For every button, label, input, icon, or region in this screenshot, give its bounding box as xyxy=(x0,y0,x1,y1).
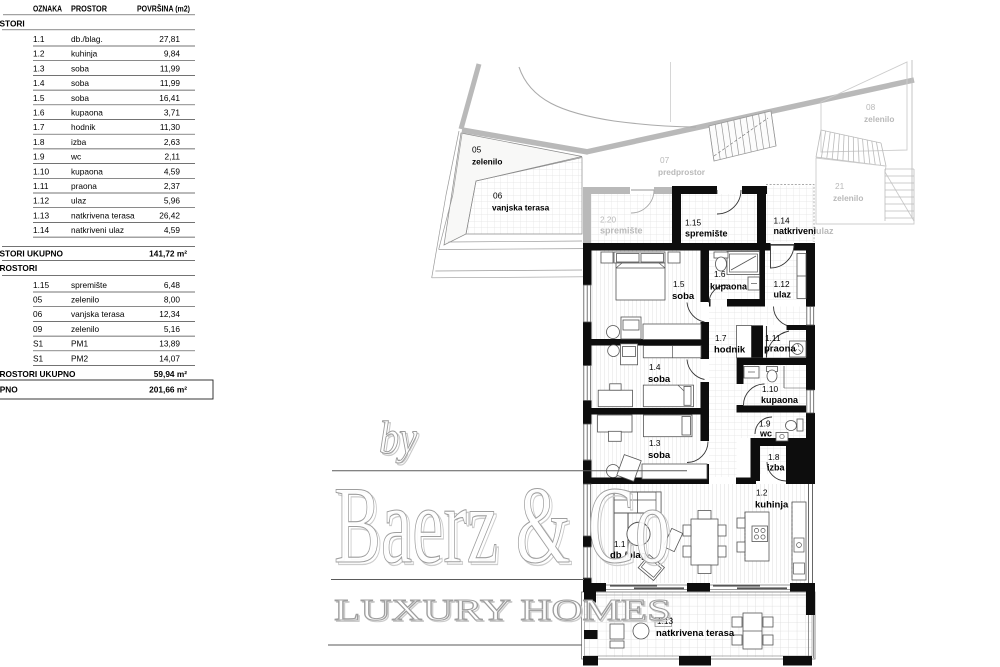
svg-text:26,42: 26,42 xyxy=(159,210,180,220)
svg-text:4,59: 4,59 xyxy=(164,225,181,235)
svg-text:izba: izba xyxy=(71,137,87,147)
svg-text:1.2: 1.2 xyxy=(756,488,768,498)
svg-text:zelenilo: zelenilo xyxy=(833,193,863,203)
svg-text:11,99: 11,99 xyxy=(160,63,181,73)
svg-text:wc: wc xyxy=(759,429,772,439)
svg-text:1.8: 1.8 xyxy=(33,137,45,147)
svg-text:13,89: 13,89 xyxy=(159,339,180,349)
svg-text:1.11: 1.11 xyxy=(765,333,781,343)
svg-text:1.2: 1.2 xyxy=(33,49,45,59)
svg-text:07: 07 xyxy=(660,155,670,165)
svg-text:natkriveni: natkriveni xyxy=(774,226,817,236)
svg-text:2.20: 2.20 xyxy=(600,215,617,225)
svg-text:ulaz: ulaz xyxy=(816,226,834,236)
svg-text:16,41: 16,41 xyxy=(159,93,180,103)
svg-text:praona: praona xyxy=(764,344,796,355)
svg-text:1.14: 1.14 xyxy=(774,216,791,226)
svg-text:1.4: 1.4 xyxy=(649,362,661,372)
svg-text:05: 05 xyxy=(33,295,43,305)
svg-text:LUXURY HOMES: LUXURY HOMES xyxy=(334,592,671,627)
svg-text:hodnik: hodnik xyxy=(71,122,96,132)
svg-text:1.15: 1.15 xyxy=(33,280,50,290)
svg-text:UPNO: UPNO xyxy=(0,385,18,395)
svg-text:wc: wc xyxy=(70,152,81,162)
svg-text:PM2: PM2 xyxy=(71,353,88,363)
svg-text:1.9: 1.9 xyxy=(759,419,771,429)
svg-text:PROSTORI: PROSTORI xyxy=(0,263,37,273)
svg-text:zelenilo: zelenilo xyxy=(71,295,100,305)
svg-text:spremište: spremište xyxy=(71,280,107,290)
svg-text:POVRŠINA (m2): POVRŠINA (m2) xyxy=(137,3,190,14)
svg-text:1.5: 1.5 xyxy=(673,279,685,289)
svg-text:PM1: PM1 xyxy=(71,339,88,349)
svg-text:2,63: 2,63 xyxy=(164,137,181,147)
svg-text:12,34: 12,34 xyxy=(159,309,180,319)
svg-text:praona: praona xyxy=(71,181,97,191)
svg-text:1.12: 1.12 xyxy=(774,279,791,289)
svg-text:1.12: 1.12 xyxy=(33,196,50,206)
svg-text:izba: izba xyxy=(767,463,785,473)
svg-text:4,59: 4,59 xyxy=(164,166,181,176)
svg-text:1.6: 1.6 xyxy=(33,108,45,118)
svg-text:natkriveni ulaz: natkriveni ulaz xyxy=(71,225,124,235)
svg-text:6,48: 6,48 xyxy=(164,280,181,290)
svg-text:1.14: 1.14 xyxy=(33,225,50,235)
svg-text:06: 06 xyxy=(493,191,503,201)
svg-text:21: 21 xyxy=(835,181,845,191)
svg-text:soba: soba xyxy=(71,63,89,73)
svg-text:ulaz: ulaz xyxy=(71,196,86,206)
svg-text:27,81: 27,81 xyxy=(159,34,180,44)
svg-text:1.4: 1.4 xyxy=(33,78,45,88)
svg-text:natkrivena terasa: natkrivena terasa xyxy=(656,628,735,639)
svg-text:09: 09 xyxy=(33,324,43,334)
svg-text:9,84: 9,84 xyxy=(164,49,181,59)
svg-text:06: 06 xyxy=(33,309,43,319)
svg-text:STORI: STORI xyxy=(0,19,25,29)
svg-text:5,96: 5,96 xyxy=(164,196,181,206)
svg-text:kupaona: kupaona xyxy=(710,282,748,292)
svg-text:soba: soba xyxy=(648,450,671,461)
svg-text:1.13: 1.13 xyxy=(33,210,50,220)
svg-text:05: 05 xyxy=(472,145,482,155)
svg-text:vanjska terasa: vanjska terasa xyxy=(71,309,125,319)
svg-text:PROSTOR: PROSTOR xyxy=(71,4,107,14)
svg-text:zelenilo: zelenilo xyxy=(71,324,100,334)
svg-text:PROSTORI UKUPNO: PROSTORI UKUPNO xyxy=(0,369,76,379)
svg-text:1.3: 1.3 xyxy=(649,438,661,448)
svg-text:STORI UKUPNO: STORI UKUPNO xyxy=(0,249,64,259)
svg-text:natkrivena terasa: natkrivena terasa xyxy=(71,210,135,220)
svg-text:141,72 m²: 141,72 m² xyxy=(149,249,187,259)
svg-text:S1: S1 xyxy=(33,353,44,363)
svg-text:1.1: 1.1 xyxy=(33,34,45,44)
svg-text:14,07: 14,07 xyxy=(159,353,180,363)
svg-text:soba: soba xyxy=(672,291,695,302)
svg-text:8,00: 8,00 xyxy=(164,295,181,305)
svg-text:1.7: 1.7 xyxy=(33,122,45,132)
svg-text:vanjska terasa: vanjska terasa xyxy=(492,203,550,213)
svg-text:1.7: 1.7 xyxy=(715,333,727,343)
svg-text:hodnik: hodnik xyxy=(714,345,746,356)
svg-text:1.10: 1.10 xyxy=(762,384,779,394)
svg-text:1.10: 1.10 xyxy=(33,166,50,176)
svg-text:1.3: 1.3 xyxy=(33,63,45,73)
svg-text:201,66 m²: 201,66 m² xyxy=(149,385,187,395)
svg-text:soba: soba xyxy=(71,78,89,88)
svg-text:kupaona: kupaona xyxy=(71,108,103,118)
svg-text:11,30: 11,30 xyxy=(160,122,181,132)
svg-text:1.5: 1.5 xyxy=(33,93,45,103)
svg-text:OZNAKA: OZNAKA xyxy=(33,4,62,14)
svg-text:spremište: spremište xyxy=(600,226,643,236)
svg-text:zelenilo: zelenilo xyxy=(472,157,502,167)
svg-text:3,71: 3,71 xyxy=(164,108,181,118)
svg-text:kupaona: kupaona xyxy=(761,395,799,405)
svg-text:5,16: 5,16 xyxy=(164,324,181,334)
svg-text:2,11: 2,11 xyxy=(164,152,180,162)
svg-text:soba: soba xyxy=(71,93,89,103)
svg-text:kuhinja: kuhinja xyxy=(755,500,789,511)
svg-text:S1: S1 xyxy=(33,339,44,349)
svg-text:kupaona: kupaona xyxy=(71,166,103,176)
svg-text:zelenilo: zelenilo xyxy=(864,114,894,124)
svg-text:predprostor: predprostor xyxy=(658,167,706,177)
svg-text:1.8: 1.8 xyxy=(768,452,780,462)
svg-text:soba: soba xyxy=(648,374,671,385)
svg-text:ulaz: ulaz xyxy=(774,290,792,300)
svg-text:1.11: 1.11 xyxy=(33,181,49,191)
svg-text:2,37: 2,37 xyxy=(164,181,181,191)
svg-text:08: 08 xyxy=(866,102,876,112)
svg-text:1.9: 1.9 xyxy=(33,152,45,162)
svg-text:kuhinja: kuhinja xyxy=(71,49,98,59)
svg-text:db./blag.: db./blag. xyxy=(71,34,103,44)
svg-text:by: by xyxy=(379,412,417,464)
svg-text:spremište: spremište xyxy=(685,229,728,239)
svg-text:59,94 m²: 59,94 m² xyxy=(154,369,187,379)
svg-text:Baerz & Co: Baerz & Co xyxy=(334,464,670,586)
svg-text:11,99: 11,99 xyxy=(160,78,181,88)
svg-text:1.15: 1.15 xyxy=(685,218,702,228)
svg-text:1.6: 1.6 xyxy=(714,269,726,279)
